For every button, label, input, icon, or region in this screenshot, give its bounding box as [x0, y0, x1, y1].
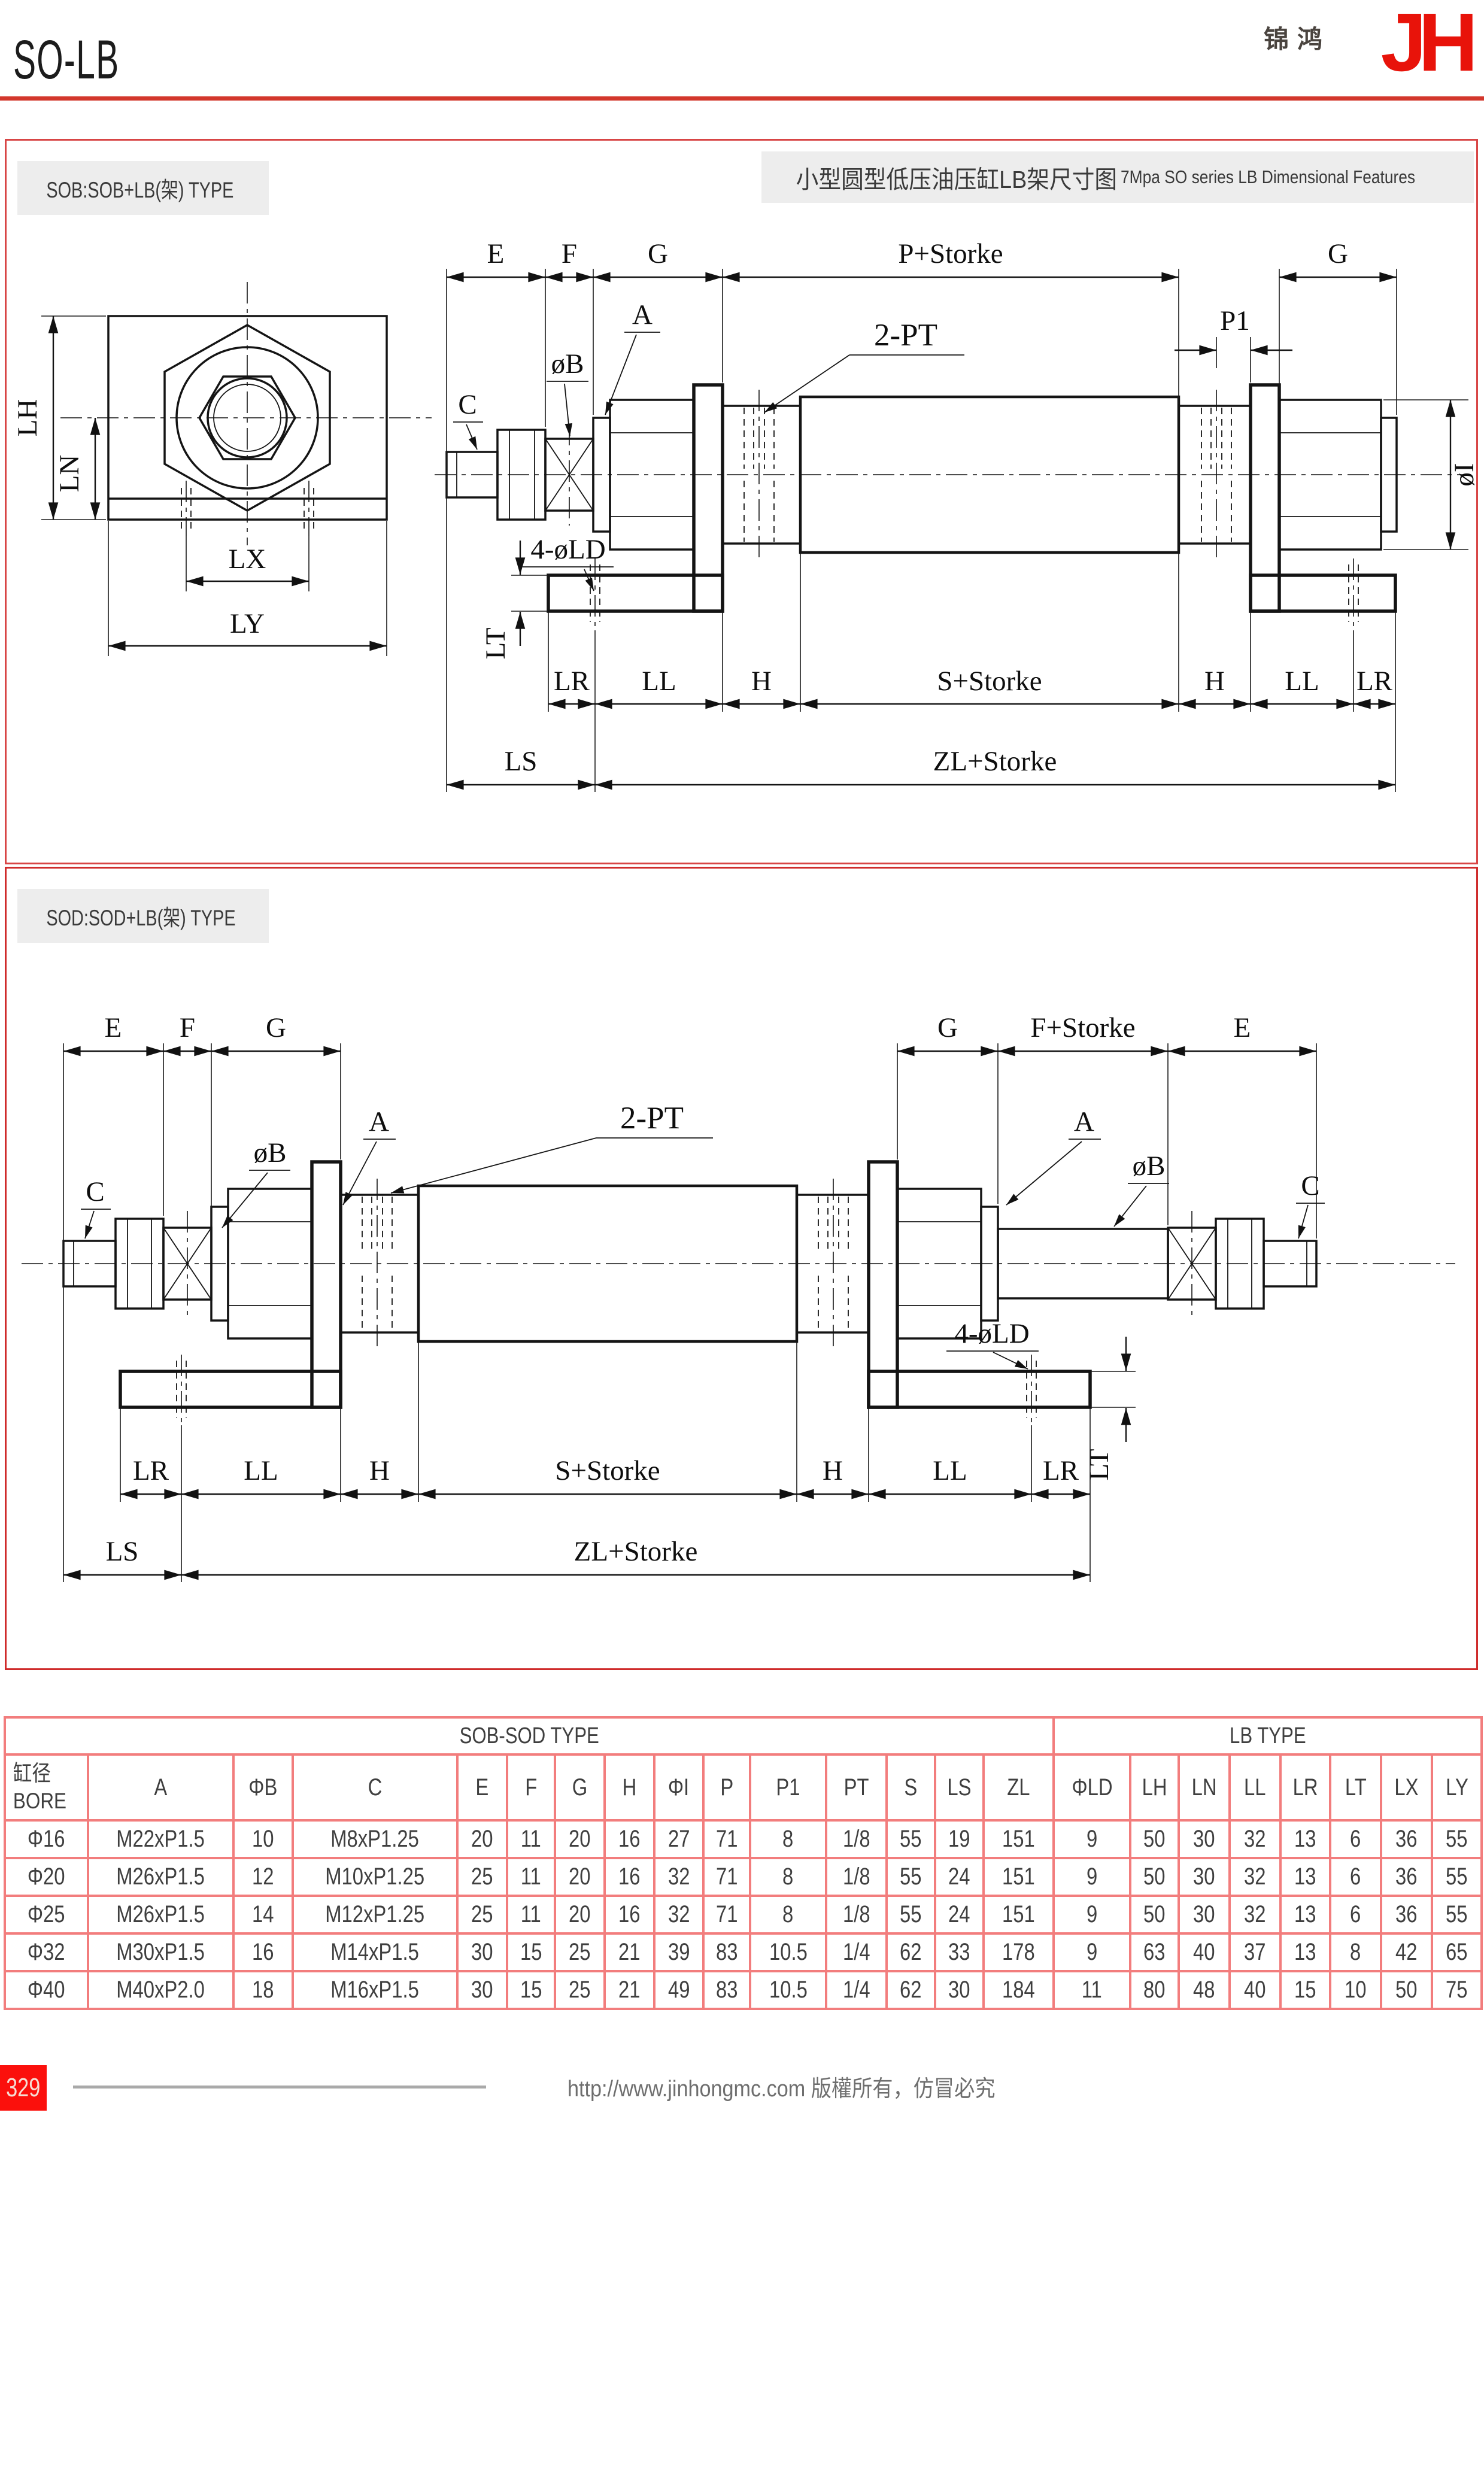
- table-cell: 83: [703, 1971, 750, 2009]
- table-cell: 30: [935, 1971, 984, 2009]
- logo-chinese-text: 锦鸿: [1264, 19, 1331, 56]
- table-cell: 50: [1130, 1858, 1179, 1896]
- dim-label-f: F: [562, 238, 577, 269]
- table-cell: 9: [1054, 1858, 1130, 1896]
- dim-label-f: F: [180, 1012, 195, 1043]
- table-cell: 30: [1179, 1896, 1230, 1933]
- section-sob-title: 小型圆型低压油压缸LB架尺寸图 7Mpa SO series LB Dimens…: [761, 151, 1474, 203]
- dim-label-lt: LT: [480, 627, 511, 659]
- bore-cell: Φ16: [5, 1820, 88, 1858]
- table-cell: M16xP1.5: [293, 1971, 457, 2009]
- table-cell: 48: [1179, 1971, 1230, 2009]
- dim-label-ll: LL: [642, 666, 676, 697]
- column-header: LH: [1130, 1754, 1179, 1820]
- copyright-text: http://www.jinhongmc.com 版權所有，仿冒必究: [567, 2070, 996, 2103]
- dim-label-a: A: [632, 299, 653, 330]
- table-cell: 21: [605, 1933, 654, 1971]
- dim-label-g: G: [648, 238, 668, 269]
- column-header: E: [457, 1754, 507, 1820]
- table-cell: 16: [605, 1858, 654, 1896]
- footer-divider: [73, 2086, 486, 2089]
- dim-label-a: A: [369, 1106, 389, 1137]
- table-cell: 15: [507, 1933, 555, 1971]
- dim-label-lr: LR: [554, 666, 590, 697]
- dim-label-zl-storke: ZL+Storke: [933, 746, 1057, 777]
- table-cell: 20: [457, 1820, 507, 1858]
- table-cell: 13: [1280, 1896, 1330, 1933]
- bore-cell: Φ20: [5, 1858, 88, 1896]
- sob-cylinder-side-view: [435, 385, 1470, 628]
- table-cell: 80: [1130, 1971, 1179, 2009]
- table-cell: 32: [1230, 1858, 1280, 1896]
- table-cell: 16: [605, 1896, 654, 1933]
- bore-cell: Φ40: [5, 1971, 88, 2009]
- table-cell: 32: [654, 1858, 703, 1896]
- column-header-bore: 缸径BORE: [5, 1754, 88, 1820]
- table-cell: 55: [1432, 1896, 1482, 1933]
- table-cell: 50: [1381, 1971, 1432, 2009]
- column-header: LN: [1179, 1754, 1230, 1820]
- table-cell: 30: [457, 1933, 507, 1971]
- bore-cell: Φ25: [5, 1896, 88, 1933]
- table-cell: 36: [1381, 1896, 1432, 1933]
- table-cell: 1/4: [826, 1971, 887, 2009]
- table-cell: 83: [703, 1933, 750, 1971]
- table-cell: 32: [1230, 1820, 1280, 1858]
- column-header: P1: [750, 1754, 826, 1820]
- logo-jh-icon: JH: [1381, 0, 1470, 90]
- table-row: Φ20M26xP1.512M10xP1.2525112016327181/855…: [5, 1858, 1482, 1896]
- table-cell: 14: [233, 1896, 293, 1933]
- section-sod-label: SOD:SOD+LB(架) TYPE: [17, 889, 269, 943]
- column-header: H: [605, 1754, 654, 1820]
- table-cell: 178: [984, 1933, 1054, 1971]
- column-header: LY: [1432, 1754, 1482, 1820]
- column-header: LR: [1280, 1754, 1330, 1820]
- table-cell: 9: [1054, 1896, 1130, 1933]
- dim-label-c: C: [86, 1176, 104, 1207]
- dim-label-lr2: LR: [1356, 666, 1393, 697]
- header-divider: [0, 96, 1484, 101]
- table-cell: 30: [1179, 1858, 1230, 1896]
- table-cell: 33: [935, 1933, 984, 1971]
- table-cell: 13: [1280, 1933, 1330, 1971]
- table-cell: 1/8: [826, 1820, 887, 1858]
- table-cell: M26xP1.5: [88, 1896, 233, 1933]
- section-sod-label-text: SOD:SOD+LB(架) TYPE: [17, 900, 236, 932]
- table-cell: 62: [887, 1971, 935, 2009]
- table-cell: 13: [1280, 1858, 1330, 1896]
- dim-label-ly: LY: [230, 608, 265, 639]
- table-cell: 55: [1432, 1820, 1482, 1858]
- group-header-sob-sod: SOB-SOD TYPE: [5, 1717, 1054, 1754]
- table-cell: M22xP1.5: [88, 1820, 233, 1858]
- dim-label-s-storke: S+Storke: [937, 666, 1042, 697]
- table-cell: 75: [1432, 1971, 1482, 2009]
- dim-label-4old: 4-øLD: [954, 1318, 1029, 1349]
- dim-label-a2: A: [1074, 1106, 1094, 1137]
- sob-bracket-front-view: LH LN LX LY: [12, 282, 432, 656]
- section-sob-title-cn: 小型圆型低压油压缸LB架尺寸图: [796, 159, 1118, 195]
- table-cell: 25: [555, 1971, 605, 2009]
- dim-label-lh: LH: [12, 399, 43, 437]
- group-header-lb: LB TYPE: [1054, 1717, 1482, 1754]
- column-header: G: [555, 1754, 605, 1820]
- table-cell: 8: [750, 1820, 826, 1858]
- table-cell: 9: [1054, 1820, 1130, 1858]
- dim-label-f-storke: F+Storke: [1030, 1012, 1135, 1043]
- page-title: SO-LB: [13, 29, 119, 92]
- table-cell: M40xP2.0: [88, 1971, 233, 2009]
- table-cell: 55: [887, 1820, 935, 1858]
- table-cell: 71: [703, 1858, 750, 1896]
- table-cell: 11: [1054, 1971, 1130, 2009]
- column-header: ZL: [984, 1754, 1054, 1820]
- table-cell: 15: [507, 1971, 555, 2009]
- table-cell: 6: [1330, 1820, 1381, 1858]
- page-number: 329: [6, 2073, 40, 2103]
- dim-label-phi-b: øB: [551, 348, 584, 380]
- table-cell: 62: [887, 1933, 935, 1971]
- company-logo: 锦鸿 JH: [1246, 4, 1473, 93]
- sob-dimensional-drawing: LH LN LX LY: [7, 217, 1480, 861]
- table-cell: 40: [1179, 1933, 1230, 1971]
- bore-cell: Φ32: [5, 1933, 88, 1971]
- table-cell: M12xP1.25: [293, 1896, 457, 1933]
- dim-label-ll2: LL: [933, 1455, 967, 1486]
- table-cell: 15: [1280, 1971, 1330, 2009]
- table-cell: 40: [1230, 1971, 1280, 2009]
- dim-label-phi-b2: øB: [1133, 1151, 1166, 1182]
- table-cell: M26xP1.5: [88, 1858, 233, 1896]
- table-cell: 16: [605, 1820, 654, 1858]
- dim-label-lr2: LR: [1043, 1455, 1079, 1486]
- dim-label-4old: 4-øLD: [530, 534, 605, 565]
- sob-top-dimensions: E F G P+Storke G P1 øI: [447, 238, 1480, 792]
- table-cell: 16: [233, 1933, 293, 1971]
- column-header: LS: [935, 1754, 984, 1820]
- column-header: ΦI: [654, 1754, 703, 1820]
- table-cell: 151: [984, 1820, 1054, 1858]
- table-cell: M14xP1.5: [293, 1933, 457, 1971]
- column-header: PT: [826, 1754, 887, 1820]
- section-sob-label: SOB:SOB+LB(架) TYPE: [17, 161, 269, 215]
- dim-label-ln: LN: [54, 455, 85, 493]
- table-cell: 13: [1280, 1820, 1330, 1858]
- table-cell: 9: [1054, 1933, 1130, 1971]
- table-head: SOB-SOD TYPELB TYPE缸径BOREAΦBCEFGHΦIPP1PT…: [5, 1717, 1482, 1820]
- column-header: ΦB: [233, 1754, 293, 1820]
- table-cell: 1/4: [826, 1933, 887, 1971]
- column-header: P: [703, 1754, 750, 1820]
- table-cell: 10.5: [750, 1971, 826, 2009]
- dim-label-c: C: [458, 389, 477, 420]
- table-cell: M30xP1.5: [88, 1933, 233, 1971]
- table-cell: 10: [1330, 1971, 1381, 2009]
- table-cell: 71: [703, 1896, 750, 1933]
- table-cell: 39: [654, 1933, 703, 1971]
- table-cell: M10xP1.25: [293, 1858, 457, 1896]
- table-cell: 11: [507, 1896, 555, 1933]
- dim-label-e: E: [487, 238, 505, 269]
- table-row: Φ25M26xP1.514M12xP1.2525112016327181/855…: [5, 1896, 1482, 1933]
- dim-label-p-storke: P+Storke: [898, 238, 1003, 269]
- table-body: Φ16M22xP1.510M8xP1.2520112016277181/8551…: [5, 1820, 1482, 2009]
- section-sob-title-en: 7Mpa SO series LB Dimensional Features: [1121, 166, 1415, 188]
- table-cell: 6: [1330, 1896, 1381, 1933]
- table-cell: 151: [984, 1896, 1054, 1933]
- column-header: S: [887, 1754, 935, 1820]
- table-row: Φ40M40xP2.018M16xP1.530152521498310.51/4…: [5, 1971, 1482, 2009]
- table-row: Φ16M22xP1.510M8xP1.2520112016277181/8551…: [5, 1820, 1482, 1858]
- table-cell: 42: [1381, 1933, 1432, 1971]
- table-cell: 32: [654, 1896, 703, 1933]
- dim-label-h2: H: [823, 1455, 843, 1486]
- dim-label-h2: H: [1204, 666, 1225, 697]
- table-cell: 24: [935, 1896, 984, 1933]
- column-header: LT: [1330, 1754, 1381, 1820]
- sod-cylinder-side-view: [22, 1162, 1455, 1424]
- table-cell: 184: [984, 1971, 1054, 2009]
- table-cell: 8: [750, 1896, 826, 1933]
- table-cell: 36: [1381, 1858, 1432, 1896]
- dim-label-g: G: [266, 1012, 286, 1043]
- table-cell: 20: [555, 1820, 605, 1858]
- dim-label-e: E: [105, 1012, 122, 1043]
- table-cell: 25: [555, 1933, 605, 1971]
- dim-label-2pt: 2-PT: [620, 1101, 684, 1136]
- dim-label-e2: E: [1234, 1012, 1251, 1043]
- dim-label-p1: P1: [1220, 305, 1250, 336]
- sod-leader-labels: C øB A 2-PT A øB C 4-øLD: [81, 1101, 1325, 1481]
- table-cell: 36: [1381, 1820, 1432, 1858]
- section-sod: SOD:SOD+LB(架) TYPE: [5, 867, 1478, 1670]
- table-cell: 10.5: [750, 1933, 826, 1971]
- table-cell: 11: [507, 1858, 555, 1896]
- column-header: LX: [1381, 1754, 1432, 1820]
- column-header: A: [88, 1754, 233, 1820]
- section-sob: SOB:SOB+LB(架) TYPE 小型圆型低压油压缸LB架尺寸图 7Mpa …: [5, 139, 1478, 864]
- table-cell: 8: [1330, 1933, 1381, 1971]
- dim-label-2pt: 2-PT: [874, 318, 937, 353]
- table-cell: 27: [654, 1820, 703, 1858]
- dim-label-ll2: LL: [1285, 666, 1319, 697]
- table-cell: 6: [1330, 1858, 1381, 1896]
- table-cell: 20: [555, 1858, 605, 1896]
- dim-label-h: H: [751, 666, 772, 697]
- dim-label-zl-storke: ZL+Storke: [574, 1536, 698, 1567]
- dim-label-lt: LT: [1084, 1449, 1115, 1480]
- table-cell: 12: [233, 1858, 293, 1896]
- dimension-spec-table: SOB-SOD TYPELB TYPE缸径BOREAΦBCEFGHΦIPP1PT…: [4, 1716, 1483, 2010]
- table-cell: 55: [887, 1896, 935, 1933]
- column-header: F: [507, 1754, 555, 1820]
- dim-label-phi-b: øB: [254, 1137, 287, 1168]
- table-cell: M8xP1.25: [293, 1820, 457, 1858]
- table-cell: 8: [750, 1858, 826, 1896]
- table-cell: 37: [1230, 1933, 1280, 1971]
- sob-leader-labels: A øB C 2-PT 4-øLD LT: [453, 299, 964, 660]
- table-cell: 49: [654, 1971, 703, 2009]
- table-cell: 20: [555, 1896, 605, 1933]
- dim-label-ll: LL: [244, 1455, 278, 1486]
- table-cell: 55: [1432, 1858, 1482, 1896]
- table-cell: 19: [935, 1820, 984, 1858]
- sod-top-dimensions: E F G G F+Storke E: [63, 1012, 1316, 1582]
- table-cell: 30: [457, 1971, 507, 2009]
- table-cell: 25: [457, 1858, 507, 1896]
- table-cell: 32: [1230, 1896, 1280, 1933]
- dim-label-g2: G: [937, 1012, 958, 1043]
- table-cell: 25: [457, 1896, 507, 1933]
- table-cell: 1/8: [826, 1858, 887, 1896]
- column-header: ΦLD: [1054, 1754, 1130, 1820]
- page-number-badge: 329: [0, 2065, 47, 2111]
- section-sob-label-text: SOB:SOB+LB(架) TYPE: [17, 172, 233, 204]
- dim-label-phi-i: øI: [1449, 463, 1480, 486]
- table-cell: 30: [1179, 1820, 1230, 1858]
- dim-label-g2: G: [1328, 238, 1348, 269]
- column-header: LL: [1230, 1754, 1280, 1820]
- table-cell: 18: [233, 1971, 293, 2009]
- sod-dimensional-drawing: E F G G F+Storke E C øB A 2-PT A øB: [7, 952, 1480, 1665]
- dim-label-s-storke: S+Storke: [555, 1455, 660, 1486]
- table-cell: 50: [1130, 1820, 1179, 1858]
- table-cell: 55: [887, 1858, 935, 1896]
- dim-label-lx: LX: [229, 544, 266, 575]
- table-cell: 1/8: [826, 1896, 887, 1933]
- table-cell: 151: [984, 1858, 1054, 1896]
- table-cell: 50: [1130, 1896, 1179, 1933]
- table-cell: 21: [605, 1971, 654, 2009]
- sod-bottom-dimensions: LR LL H S+Storke H LL LR LS ZL+Storke: [63, 1343, 1090, 1582]
- dim-label-ls: LS: [106, 1536, 139, 1567]
- sob-bottom-dimensions: LR LL H S+Storke H LL LR LS ZL+Storke: [447, 554, 1395, 792]
- table-cell: 24: [935, 1858, 984, 1896]
- column-header: C: [293, 1754, 457, 1820]
- table-cell: 10: [233, 1820, 293, 1858]
- table-cell: 65: [1432, 1933, 1482, 1971]
- dim-label-lr: LR: [133, 1455, 169, 1486]
- dim-label-c2: C: [1301, 1170, 1319, 1201]
- table-cell: 71: [703, 1820, 750, 1858]
- table-row: Φ32M30xP1.516M14xP1.530152521398310.51/4…: [5, 1933, 1482, 1971]
- dim-label-h: H: [369, 1455, 390, 1486]
- table-cell: 11: [507, 1820, 555, 1858]
- dim-label-ls: LS: [505, 746, 538, 777]
- table-cell: 63: [1130, 1933, 1179, 1971]
